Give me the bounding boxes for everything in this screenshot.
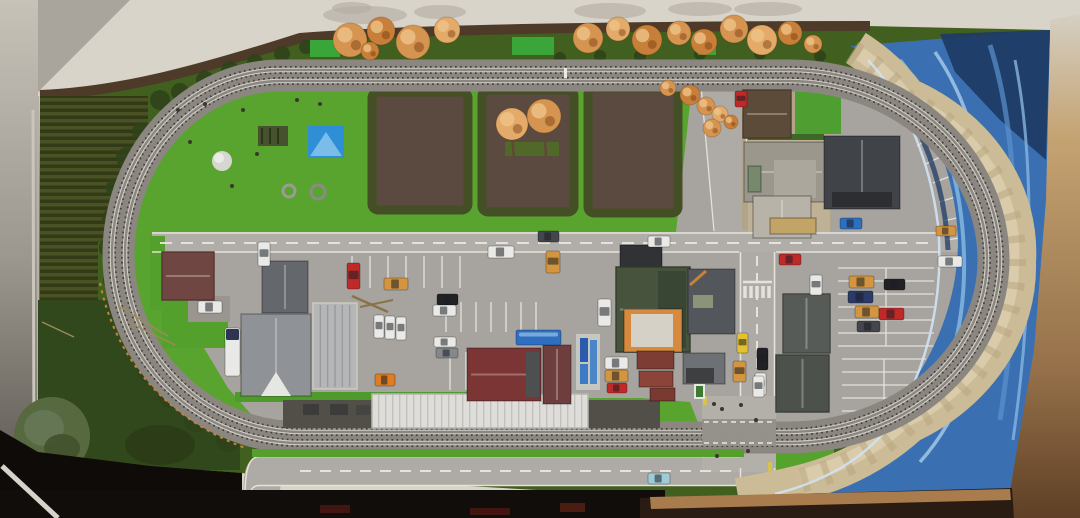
- scene-svg: [0, 0, 1080, 518]
- foliage-highlight: [705, 121, 713, 129]
- grey-orange-building: [688, 269, 735, 334]
- tree-shadow: [574, 3, 646, 19]
- temple-storehouse-roof: [770, 218, 816, 234]
- car-white: [385, 316, 395, 339]
- truck-cab: [226, 329, 239, 340]
- foliage-highlight: [714, 108, 721, 115]
- figure: [318, 102, 322, 106]
- foliage-highlight: [337, 27, 352, 42]
- car-yellow: [737, 333, 748, 353]
- car-red: [735, 91, 747, 107]
- green-shed: [748, 166, 761, 192]
- figure: [188, 140, 192, 144]
- car-blue: [840, 218, 862, 229]
- crossing-planks: [702, 419, 776, 446]
- figure: [241, 108, 245, 112]
- car-black: [757, 348, 768, 370]
- foliage-shade: [735, 29, 743, 37]
- car-white: [198, 301, 222, 313]
- orange-market-detail: [631, 314, 673, 347]
- vehicle-windows: [443, 296, 450, 304]
- car-white: [396, 317, 406, 340]
- car-white: [433, 305, 456, 316]
- autumn-tree: [667, 21, 691, 45]
- platform-shelter: [330, 404, 348, 415]
- field-plot-1: [372, 92, 468, 210]
- vehicle-windows: [887, 310, 895, 319]
- car-white: [648, 236, 670, 247]
- foliage-highlight: [694, 32, 706, 44]
- foliage-shade: [720, 114, 725, 119]
- office-building-detail: [832, 192, 892, 207]
- figure: [739, 403, 743, 407]
- figure: [203, 102, 207, 106]
- car-tan: [936, 226, 956, 236]
- ribbed-warehouse: [313, 303, 357, 389]
- vehicle-windows: [398, 324, 405, 331]
- grey-house-detail: [686, 368, 714, 383]
- orange-market: [624, 309, 682, 352]
- car-white: [605, 357, 628, 369]
- foliage-highlight: [662, 82, 669, 89]
- vehicle-windows: [856, 293, 864, 302]
- vehicle-windows: [735, 367, 745, 374]
- black-shed-roof: [620, 245, 662, 269]
- car-navy: [848, 291, 873, 303]
- platform-shelter: [303, 404, 319, 415]
- vehicle-windows: [443, 350, 450, 357]
- vehicle-windows: [496, 248, 504, 257]
- farmhouse: [743, 90, 791, 138]
- red-warehouse-b: [639, 371, 673, 387]
- car-white: [598, 299, 611, 326]
- vehicle-windows: [612, 372, 619, 381]
- car-white: [810, 275, 822, 295]
- vehicle-windows: [260, 249, 269, 257]
- car-tan: [384, 278, 408, 290]
- foliage-shade: [370, 51, 375, 56]
- car-white: [434, 337, 456, 347]
- foliage-shade: [619, 29, 626, 36]
- foliage-shade: [448, 30, 456, 38]
- figure: [754, 418, 758, 422]
- foliage-highlight: [609, 20, 620, 31]
- red-warehouse-a: [637, 351, 674, 369]
- figure: [715, 454, 719, 458]
- black-shed: [620, 245, 662, 269]
- vehicle-windows: [755, 382, 763, 389]
- car-tan: [546, 251, 560, 273]
- foliage-highlight: [724, 19, 737, 32]
- vehicle-windows: [381, 376, 387, 385]
- autumn-tree: [396, 25, 430, 59]
- foliage-shade: [791, 33, 798, 40]
- car-white: [938, 256, 962, 267]
- grass-strip-south: [252, 449, 744, 457]
- car-darkgrey: [538, 231, 559, 242]
- vehicle-body: [516, 330, 561, 345]
- temple-main-detail: [774, 160, 816, 198]
- figure: [746, 449, 750, 453]
- autumn-tree: [660, 80, 676, 96]
- car-black: [437, 294, 458, 305]
- bus-roof-stripe: [519, 333, 558, 337]
- figure: [712, 402, 716, 406]
- vehicle-windows: [391, 280, 399, 289]
- foliage-shade: [706, 106, 711, 111]
- vehicle-windows: [739, 339, 747, 345]
- autumn-tree: [703, 119, 721, 137]
- vehicle-windows: [945, 258, 953, 266]
- car-red: [879, 308, 904, 320]
- grass-mat: [512, 37, 554, 55]
- signal: [564, 68, 567, 78]
- vehicle-windows: [737, 96, 746, 101]
- car-red: [607, 383, 627, 393]
- foliage-shade: [763, 40, 772, 49]
- grey-gable-house: [262, 261, 308, 313]
- vehicle-windows: [655, 238, 662, 246]
- red-warehouse-a-roof: [637, 351, 674, 369]
- foliage-highlight: [806, 37, 814, 45]
- green-shed-roof: [748, 166, 761, 192]
- car-tan: [855, 306, 879, 318]
- autumn-tree: [606, 17, 630, 41]
- office-building: [824, 136, 900, 209]
- field-plot-3: [588, 88, 678, 213]
- car-red: [779, 254, 801, 265]
- tree-shadow: [332, 2, 372, 14]
- vehicle-windows: [544, 233, 551, 241]
- car-darkgrey: [857, 321, 880, 332]
- foliage-shade: [668, 88, 673, 93]
- foliage-shade: [545, 116, 555, 126]
- figure: [295, 98, 299, 102]
- tree-shadow: [414, 5, 466, 19]
- station-building: [241, 314, 311, 396]
- vehicle-windows: [812, 281, 821, 287]
- vehicle-windows: [612, 359, 619, 368]
- red-warehouse-b-roof: [639, 371, 673, 387]
- car-white: [258, 242, 270, 266]
- foliage-shade: [351, 40, 361, 50]
- foliage-shade: [813, 44, 818, 49]
- grey-orange-building-detail: [693, 295, 713, 308]
- autumn-tree: [804, 35, 822, 53]
- car-tan: [733, 361, 746, 382]
- vehicle-windows: [387, 323, 394, 330]
- red-warehouse-c-roof: [650, 388, 675, 401]
- autumn-tree: [361, 42, 379, 60]
- figure: [720, 407, 724, 411]
- foliage-highlight: [636, 29, 650, 43]
- dark-scrub-patch: [125, 425, 195, 465]
- foliage-highlight: [531, 103, 546, 118]
- autumn-tree: [496, 108, 528, 140]
- vehicle-windows: [864, 323, 871, 331]
- autumn-tree: [434, 17, 460, 43]
- tree-shadow: [668, 2, 732, 16]
- stone-sphere-highlight: [214, 153, 224, 163]
- warehouse-right-b: [776, 355, 829, 412]
- autumn-tree: [527, 99, 561, 133]
- wall-skirting: [33, 110, 34, 448]
- vehicle-windows: [890, 281, 897, 289]
- vending-machine: [590, 340, 597, 384]
- foliage-shade: [731, 122, 735, 126]
- vehicle-windows: [440, 307, 447, 315]
- foliage-highlight: [500, 112, 514, 126]
- foliage-shade: [513, 124, 523, 134]
- autumn-tree: [680, 85, 700, 105]
- foliage-shade: [691, 95, 697, 101]
- car-white: [753, 376, 764, 397]
- autumn-tree: [747, 25, 777, 55]
- vending-machine: [580, 364, 588, 384]
- car-tan: [605, 370, 628, 382]
- car-tan: [849, 276, 874, 288]
- maroon-house: [162, 252, 214, 300]
- foliage-highlight: [726, 117, 732, 123]
- vehicle-windows: [847, 220, 854, 228]
- vehicle-windows: [613, 385, 619, 392]
- big-red-warehouse: [467, 348, 541, 401]
- figure: [176, 108, 180, 112]
- truck-white: [225, 328, 240, 376]
- autumn-tree: [367, 17, 395, 45]
- autumn-tree: [691, 29, 717, 55]
- foliage-shade: [705, 42, 713, 50]
- bus-blue: [516, 330, 561, 345]
- foliage-highlight: [371, 21, 384, 34]
- foliage-highlight: [363, 44, 371, 52]
- car-aqua: [648, 473, 670, 484]
- vehicle-windows: [862, 308, 870, 317]
- autumn-tree: [724, 115, 738, 129]
- vehicle-windows: [349, 271, 359, 279]
- autumn-tree: [632, 25, 662, 55]
- figure: [230, 184, 234, 188]
- car-grey: [436, 348, 458, 358]
- platform-shelter: [356, 405, 370, 415]
- vehicle-windows: [786, 256, 793, 264]
- foliage-highlight: [577, 27, 591, 41]
- foliage-highlight: [751, 29, 765, 43]
- tree-shadow: [734, 2, 802, 16]
- foliage-shade: [712, 128, 717, 133]
- vehicle-windows: [548, 258, 559, 265]
- temple-storehouse: [770, 218, 816, 234]
- figure: [255, 152, 259, 156]
- big-red-warehouse-detail: [526, 352, 539, 397]
- car-white: [374, 315, 384, 338]
- foliage-highlight: [437, 20, 449, 32]
- diorama-photo: [0, 0, 1080, 518]
- foliage-highlight: [400, 29, 415, 44]
- foliage-highlight: [670, 24, 681, 35]
- warehouse-right-a: [783, 294, 830, 353]
- autumn-tree: [778, 21, 802, 45]
- autumn-tree: [720, 15, 748, 43]
- crossing-gate: [768, 462, 772, 471]
- shop-sign-green: [696, 386, 703, 397]
- car-orange: [375, 374, 395, 386]
- foliage-highlight: [781, 24, 792, 35]
- foliage-highlight: [699, 99, 707, 107]
- car-red: [347, 263, 360, 289]
- car-white: [488, 246, 514, 258]
- red-warehouse-c: [650, 388, 675, 401]
- car-black: [884, 279, 905, 290]
- vehicle-windows: [759, 355, 767, 362]
- foliage-shade: [382, 31, 390, 39]
- vehicle-windows: [655, 475, 662, 483]
- grey-house: [683, 353, 725, 384]
- vehicle-windows: [441, 339, 448, 346]
- vehicle-windows: [857, 278, 865, 287]
- vehicle-windows: [600, 307, 610, 316]
- foliage-shade: [414, 42, 424, 52]
- autumn-tree: [573, 23, 603, 53]
- foliage-shade: [648, 40, 657, 49]
- foliage-shade: [589, 38, 598, 47]
- foliage-shade: [680, 33, 687, 40]
- vehicle-windows: [376, 322, 383, 329]
- vending-machine: [580, 338, 588, 362]
- foliage-highlight: [683, 88, 692, 97]
- vehicle-windows: [942, 228, 948, 235]
- vehicle-windows: [205, 303, 213, 312]
- maroon-tall-building: [543, 345, 571, 404]
